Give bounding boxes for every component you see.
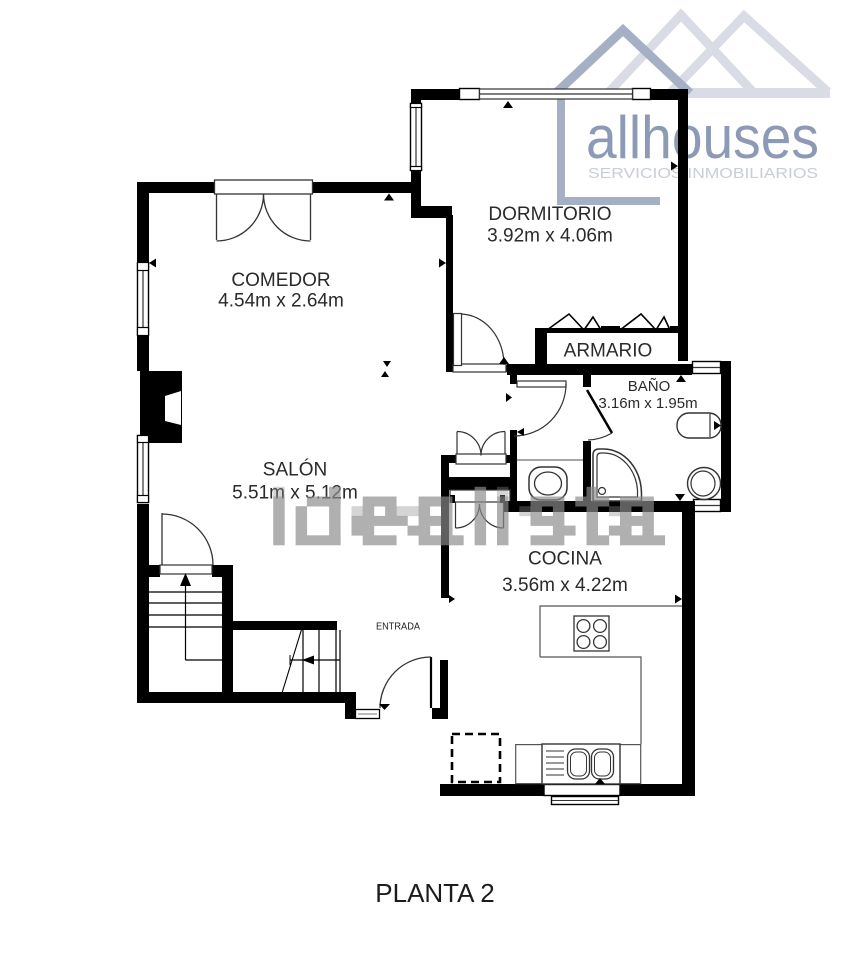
svg-text:BAÑO: BAÑO xyxy=(628,378,671,395)
svg-text:3.92m x 4.06m: 3.92m x 4.06m xyxy=(487,226,613,247)
svg-text:PLANTA 2: PLANTA 2 xyxy=(375,878,494,908)
svg-text:allhouses: allhouses xyxy=(586,104,819,171)
svg-text:ARMARIO: ARMARIO xyxy=(564,341,653,362)
svg-text:SALÓN: SALÓN xyxy=(263,459,327,481)
svg-text:4.54m x 2.64m: 4.54m x 2.64m xyxy=(218,291,344,312)
svg-text:SERVICIOS INMOBILIARIOS: SERVICIOS INMOBILIARIOS xyxy=(588,165,818,182)
svg-text:ENTRADA: ENTRADA xyxy=(376,621,420,633)
svg-text:COMEDOR: COMEDOR xyxy=(231,270,330,291)
svg-text:DORMITORIO: DORMITORIO xyxy=(488,204,611,225)
svg-text:3.16m x 1.95m: 3.16m x 1.95m xyxy=(598,395,697,412)
svg-text:COCINA: COCINA xyxy=(528,549,602,570)
svg-text:3.56m x 4.22m: 3.56m x 4.22m xyxy=(502,575,628,596)
